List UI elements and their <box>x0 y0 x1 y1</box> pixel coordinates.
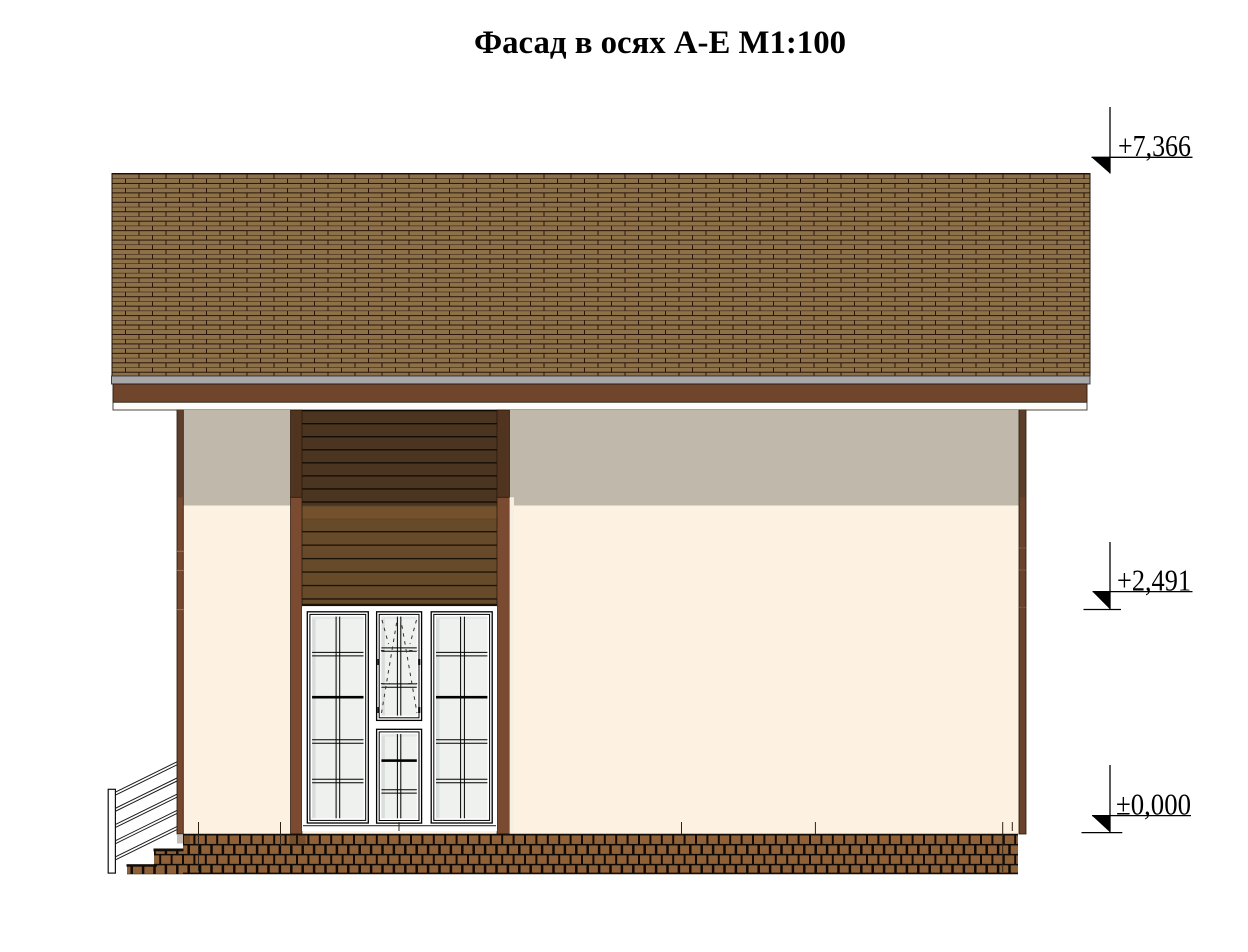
svg-text:+2,491: +2,491 <box>1117 562 1191 597</box>
svg-text:+7,366: +7,366 <box>1118 128 1191 163</box>
svg-text:±0,000: ±0,000 <box>1116 786 1191 821</box>
svg-text:Фасад в осях А-Е М1:100: Фасад в осях А-Е М1:100 <box>474 25 846 61</box>
